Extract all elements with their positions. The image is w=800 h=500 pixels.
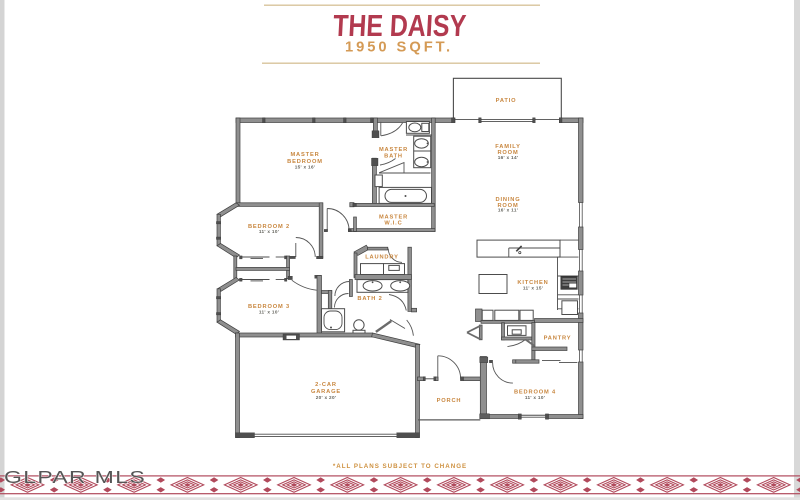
svg-text:PANTRY: PANTRY bbox=[544, 336, 572, 342]
svg-text:MASTER: MASTER bbox=[379, 147, 408, 153]
svg-text:MASTER: MASTER bbox=[290, 152, 319, 158]
svg-text:2-CAR: 2-CAR bbox=[315, 382, 337, 388]
svg-text:PATIO: PATIO bbox=[496, 98, 517, 104]
svg-text:11' x 10': 11' x 10' bbox=[525, 395, 545, 400]
svg-text:20' x 20': 20' x 20' bbox=[316, 395, 337, 400]
svg-text:11' x 10': 11' x 10' bbox=[259, 309, 279, 314]
svg-text:BATH 2: BATH 2 bbox=[357, 296, 382, 302]
svg-text:16' x 11': 16' x 11' bbox=[498, 208, 518, 213]
svg-text:11' x 10': 11' x 10' bbox=[259, 229, 279, 234]
svg-text:MASTER: MASTER bbox=[379, 214, 408, 220]
svg-text:GLPAR MLS: GLPAR MLS bbox=[4, 467, 146, 487]
svg-text:1950 SQFT.: 1950 SQFT. bbox=[345, 39, 453, 56]
svg-text:LAUNDRY: LAUNDRY bbox=[365, 255, 399, 261]
svg-text:16' x 14': 16' x 14' bbox=[498, 155, 519, 160]
svg-text:BATH: BATH bbox=[384, 154, 403, 160]
svg-text:W.I.C: W.I.C bbox=[384, 221, 402, 227]
svg-text:PORCH: PORCH bbox=[437, 398, 462, 404]
svg-text:*ALL PLANS SUBJECT TO CHANGE: *ALL PLANS SUBJECT TO CHANGE bbox=[333, 463, 467, 470]
svg-text:11' x 15': 11' x 15' bbox=[523, 285, 543, 290]
svg-text:15' x 16': 15' x 16' bbox=[295, 165, 316, 170]
